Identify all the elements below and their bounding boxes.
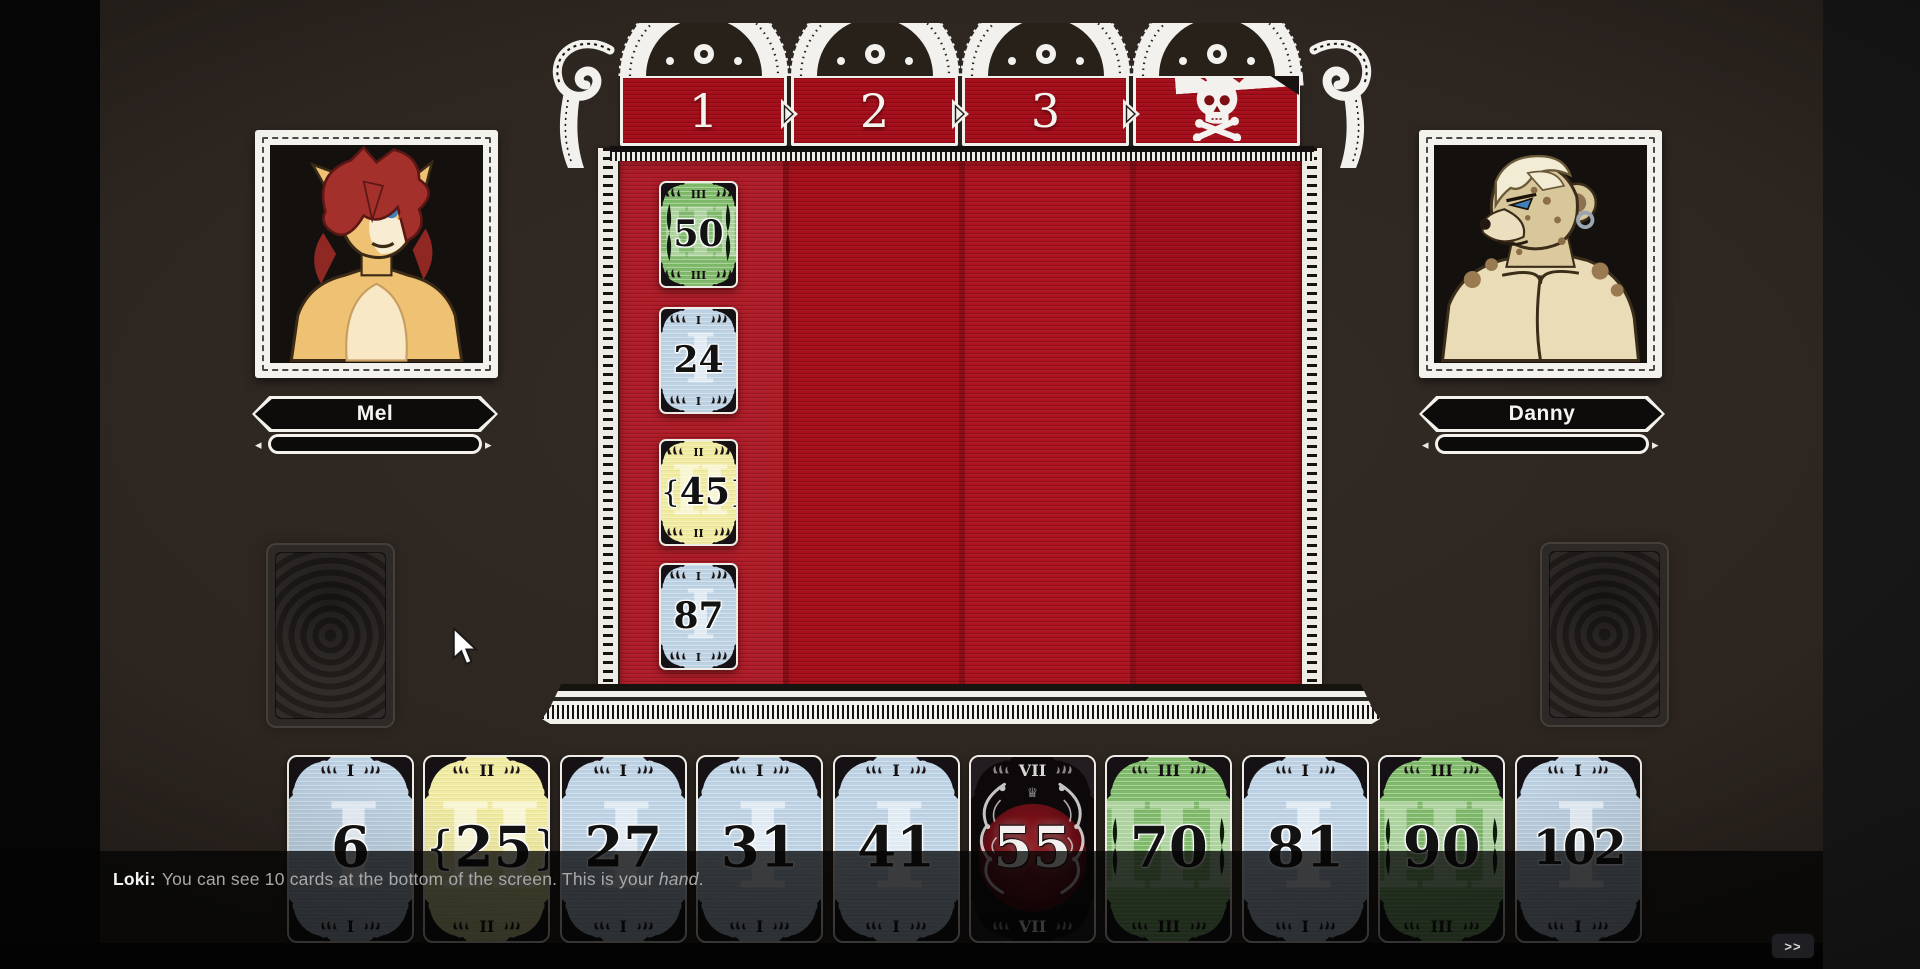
claw-marks-icon: [664, 266, 684, 284]
claw-marks-icon: [669, 392, 689, 410]
board-base-foot: [542, 719, 1380, 724]
column-number: 2: [860, 84, 889, 138]
bar-tip-icon: ▸: [1652, 437, 1659, 453]
card-value: 50: [661, 213, 736, 255]
claw-marks-icon: [1053, 762, 1073, 780]
board-column-header-3: 3: [962, 75, 1129, 146]
claw-marks-icon: [708, 311, 728, 329]
claw-marks-icon: [1275, 762, 1295, 780]
claw-marks-icon: [1460, 762, 1480, 780]
tier-numeral: II: [693, 446, 703, 459]
tier-numeral: II: [693, 527, 703, 540]
tier-numeral: III: [691, 269, 706, 282]
player-portrait-right: [1419, 130, 1662, 378]
player-nameplate-left: Mel: [252, 396, 498, 432]
tier-numeral: II: [479, 761, 494, 780]
claw-marks-icon: [664, 185, 684, 203]
deck-slot-right: [1540, 542, 1669, 727]
player-nameplate-right: Danny: [1419, 396, 1665, 432]
tier-numeral: I: [1302, 761, 1309, 780]
tutorial-speaker: Loki:: [113, 869, 156, 889]
bar-tip-icon: ▸: [485, 437, 492, 453]
card-value: 87: [661, 595, 736, 637]
board-frame-left-rail: [598, 148, 618, 688]
board-header-hatch: [610, 152, 1314, 161]
column-arrow-icon: [951, 98, 971, 130]
board-column-header-1: 1: [620, 75, 787, 146]
board-card-87[interactable]: III87: [659, 563, 738, 670]
frame-scroll-ornament: [1300, 40, 1384, 172]
player-status-bar-right: [1435, 434, 1649, 454]
torn-notch: [1269, 75, 1299, 95]
claw-marks-icon: [1187, 762, 1207, 780]
tier-numeral: III: [1430, 761, 1452, 780]
danny-avatar: [1434, 145, 1647, 363]
board-frame-right-rail: [1302, 148, 1322, 688]
frame-scroll-ornament: [540, 40, 624, 172]
board-card-50[interactable]: IIIIIIIII50: [659, 181, 738, 288]
claw-marks-icon: [1131, 762, 1151, 780]
tier-numeral: VII: [1019, 761, 1046, 780]
deck-slot-left: [266, 543, 395, 728]
tier-numeral: I: [696, 570, 701, 583]
claw-marks-icon: [666, 443, 686, 461]
claw-marks-icon: [501, 762, 521, 780]
claw-marks-icon: [1316, 762, 1336, 780]
claw-marks-icon: [452, 762, 472, 780]
claw-marks-icon: [1589, 762, 1609, 780]
crown-icon: ♕: [971, 785, 1094, 801]
board-lace-arch: [1131, 23, 1303, 76]
claw-marks-icon: [708, 648, 728, 666]
claw-marks-icon: [708, 392, 728, 410]
claw-marks-icon: [992, 762, 1012, 780]
claw-marks-icon: [593, 762, 613, 780]
tier-numeral: I: [696, 651, 701, 664]
board-column-header-2: 2: [791, 75, 958, 146]
claw-marks-icon: [361, 762, 381, 780]
bar-tip-icon: ◂: [1422, 437, 1429, 453]
board-base-hatch: [542, 705, 1380, 719]
claw-marks-icon: [669, 311, 689, 329]
board-card-45[interactable]: IIIIII{45}: [659, 439, 738, 546]
claw-marks-icon: [713, 185, 733, 203]
claw-marks-icon: [1403, 762, 1423, 780]
claw-marks-icon: [1547, 762, 1567, 780]
claw-marks-icon: [666, 524, 686, 542]
player-name-right: Danny: [1509, 402, 1576, 426]
claw-marks-icon: [729, 762, 749, 780]
tier-numeral: I: [756, 761, 763, 780]
board-card-24[interactable]: III24: [659, 307, 738, 414]
mouse-cursor: [452, 627, 478, 667]
tier-numeral: III: [691, 188, 706, 201]
tier-numeral: I: [620, 761, 627, 780]
tier-numeral: I: [347, 761, 354, 780]
claw-marks-icon: [669, 567, 689, 585]
player-portrait-left: [255, 130, 498, 378]
claw-marks-icon: [634, 762, 654, 780]
column-arrow-icon: [1122, 98, 1142, 130]
claw-marks-icon: [770, 762, 790, 780]
tier-numeral: I: [696, 395, 701, 408]
tutorial-message: Loki:You can see 10 cards at the bottom …: [113, 869, 704, 890]
claw-marks-icon: [713, 266, 733, 284]
board-lace-arch: [960, 23, 1132, 76]
card-value: 24: [661, 339, 736, 381]
claw-marks-icon: [669, 648, 689, 666]
claw-marks-icon: [711, 524, 731, 542]
column-number: 1: [689, 84, 718, 138]
board-column-header-skull: [1133, 75, 1300, 146]
tutorial-overlay: [0, 851, 1823, 943]
card-value: {45}: [661, 471, 736, 513]
skip-button[interactable]: >>: [1772, 934, 1814, 958]
board-lace-arch: [618, 23, 790, 76]
claw-marks-icon: [907, 762, 927, 780]
bar-tip-icon: ◂: [255, 437, 262, 453]
claw-marks-icon: [711, 443, 731, 461]
claw-marks-icon: [320, 762, 340, 780]
claw-marks-icon: [708, 567, 728, 585]
column-arrow-icon: [780, 98, 800, 130]
board-lace-arch: [789, 23, 961, 76]
player-status-bar-left: [268, 434, 482, 454]
tier-numeral: I: [1574, 761, 1581, 780]
mel-avatar: [270, 145, 483, 363]
letterbox-right: [1823, 0, 1920, 969]
tier-numeral: I: [892, 761, 899, 780]
tier-numeral: III: [1158, 761, 1180, 780]
game-screen: 123 IIIIIIIII50III24IIIIII{45}III87: [0, 0, 1920, 969]
bottom-bar: [0, 943, 1823, 969]
player-name-left: Mel: [357, 402, 394, 426]
game-viewport: 123 IIIIIIIII50III24IIIIII{45}III87: [100, 0, 1823, 969]
letterbox-left: [0, 0, 100, 969]
column-number: 3: [1031, 84, 1060, 138]
tier-numeral: I: [696, 314, 701, 327]
claw-marks-icon: [865, 762, 885, 780]
